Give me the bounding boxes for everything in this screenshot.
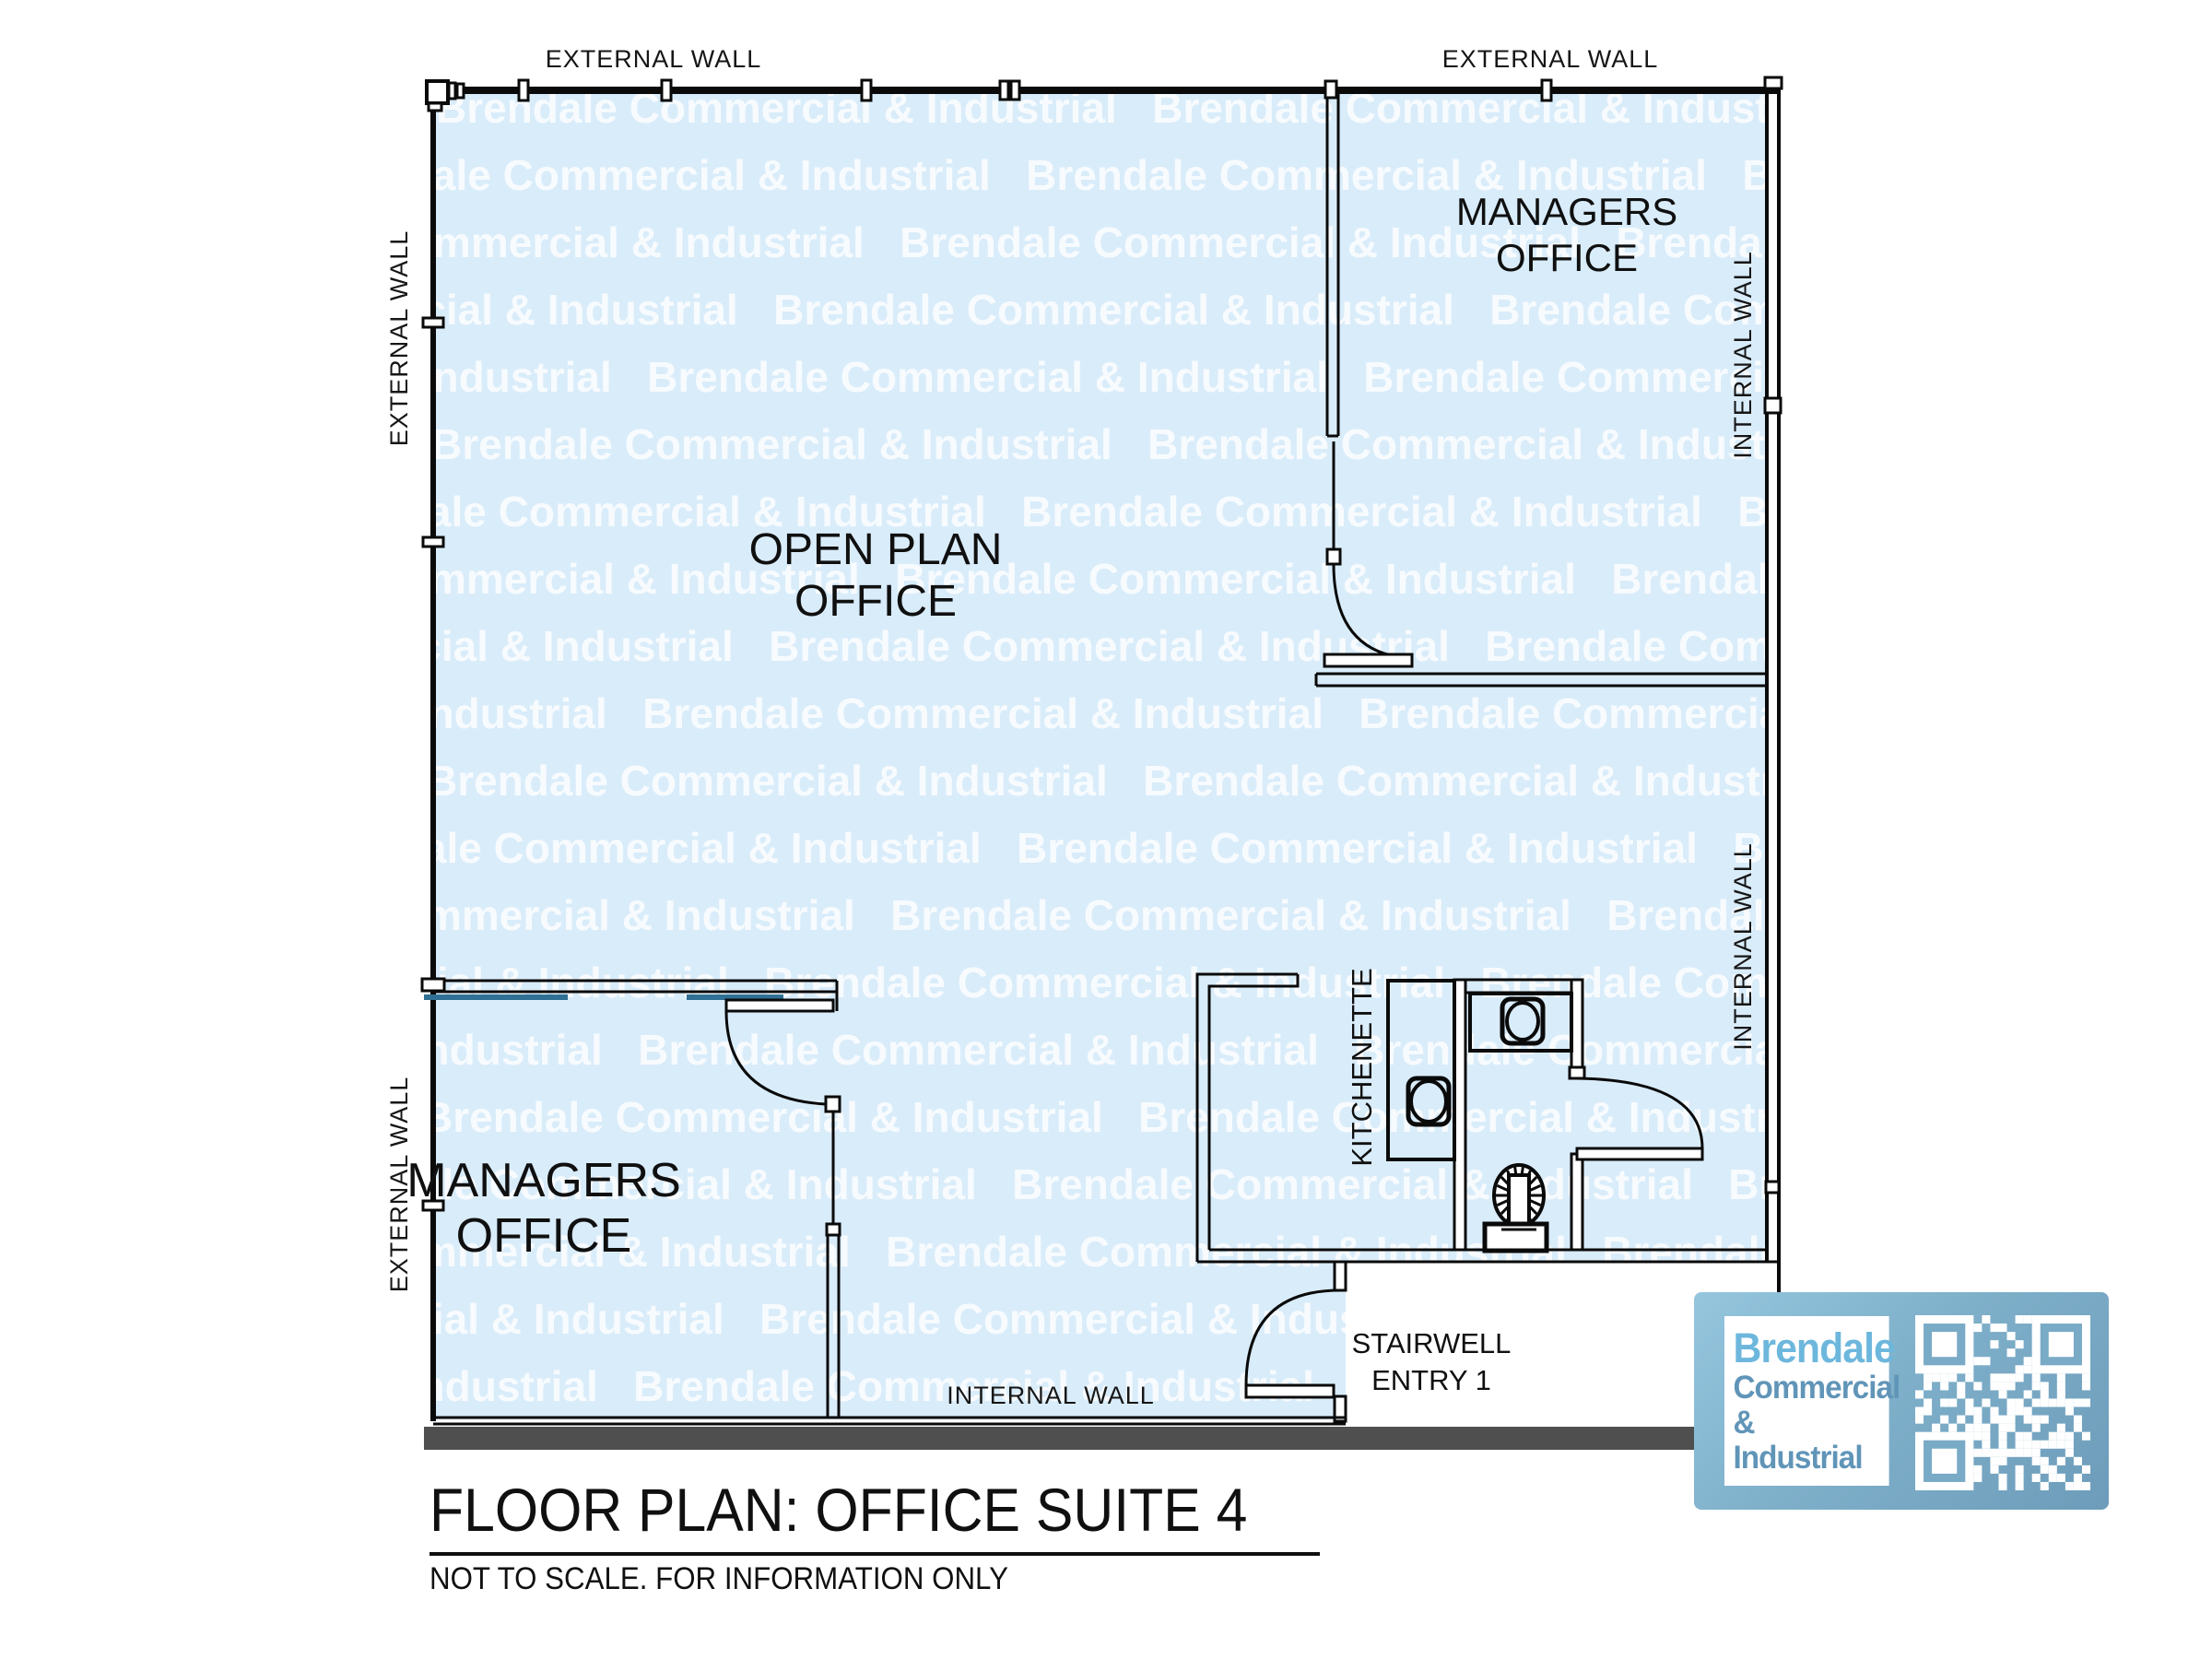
watermark-row: Brendale Commercial & Industrial Brendal… <box>305 488 2212 535</box>
watermark-row: Brendale Commercial & Industrial Brendal… <box>53 622 2212 670</box>
watermark-row: Brendale Commercial & Industrial Brendal… <box>179 555 2212 603</box>
room-label-stairwell: STAIRWELL <box>1352 1327 1512 1359</box>
logo-line-2: Commercial <box>1734 1371 1889 1406</box>
watermark-row: Brendale Commercial & Industrial Brendal… <box>431 420 2212 468</box>
watermark-row: Brendale Commercial & Industrial Brendal… <box>0 1026 2212 1074</box>
watermark-row: Brendale Commercial & Industrial Brendal… <box>427 757 2212 805</box>
room-label-stairwell-2: ENTRY 1 <box>1371 1364 1491 1396</box>
watermark-row: Brendale Commercial & Industrial Brendal… <box>300 824 2212 872</box>
internal-wall-label-bottom: INTERNAL WALL <box>947 1382 1155 1409</box>
watermark-row: Brendale Commercial & Industrial Brendal… <box>183 218 2212 266</box>
room-label-open-plan-2: OFFICE <box>794 577 957 626</box>
qr-code-icon <box>1915 1315 2090 1490</box>
room-label-managers-office-top: MANAGERS <box>1456 190 1677 233</box>
watermark-row: Brendale Commercial & Industrial Brendal… <box>0 689 2212 737</box>
title-block: FLOOR PLAN: OFFICE SUITE 4 NOT TO SCALE.… <box>429 1475 1320 1597</box>
room-label-open-plan: OPEN PLAN <box>749 525 1003 574</box>
watermark-row: Brendale Commercial & Industrial Brendal… <box>310 151 2212 199</box>
logo-text-panel: Brendale Commercial & Industrial <box>1724 1316 1889 1486</box>
room-label-kitchenette: KITCHENETTE <box>1346 968 1378 1166</box>
internal-wall-label-right-2: INTERNAL WALL <box>1729 842 1757 1051</box>
logo-line-1: Brendale <box>1734 1326 1889 1371</box>
watermark-row: Brendale Commercial & Industrial Brendal… <box>0 353 2212 401</box>
page-subtitle: NOT TO SCALE. FOR INFORMATION ONLY <box>429 1561 1320 1597</box>
title-underline <box>429 1552 1320 1556</box>
external-wall-label-left-1: EXTERNAL WALL <box>385 230 413 447</box>
watermark-row: Brendale Commercial & Industrial Brendal… <box>57 286 2212 334</box>
brendale-logo: Brendale Commercial & Industrial <box>1694 1292 2109 1510</box>
page-title: FLOOR PLAN: OFFICE SUITE 4 <box>429 1475 1320 1545</box>
watermark-row: Brendale Commercial & Industrial Brendal… <box>174 891 2212 939</box>
watermark-row: Brendale Commercial & Industrial Brendal… <box>422 1093 2212 1141</box>
room-label-managers-office-top-2: OFFICE <box>1496 236 1638 279</box>
footing-bar <box>424 1427 1696 1450</box>
floor-plan-page: Brendale Commercial & Industrial Brendal… <box>0 0 2212 1659</box>
watermark-row: Brendale Commercial & Industrial Brendal… <box>48 959 2212 1006</box>
external-wall-label-top-1: EXTERNAL WALL <box>546 45 762 73</box>
room-label-managers-office-bottom: MANAGERS <box>406 1154 681 1207</box>
logo-line-3: & Industrial <box>1734 1406 1889 1476</box>
room-label-managers-office-bottom-2: OFFICE <box>456 1209 632 1263</box>
internal-wall-label-right-1: INTERNAL WALL <box>1729 251 1757 459</box>
external-wall-label-top-2: EXTERNAL WALL <box>1442 45 1659 73</box>
